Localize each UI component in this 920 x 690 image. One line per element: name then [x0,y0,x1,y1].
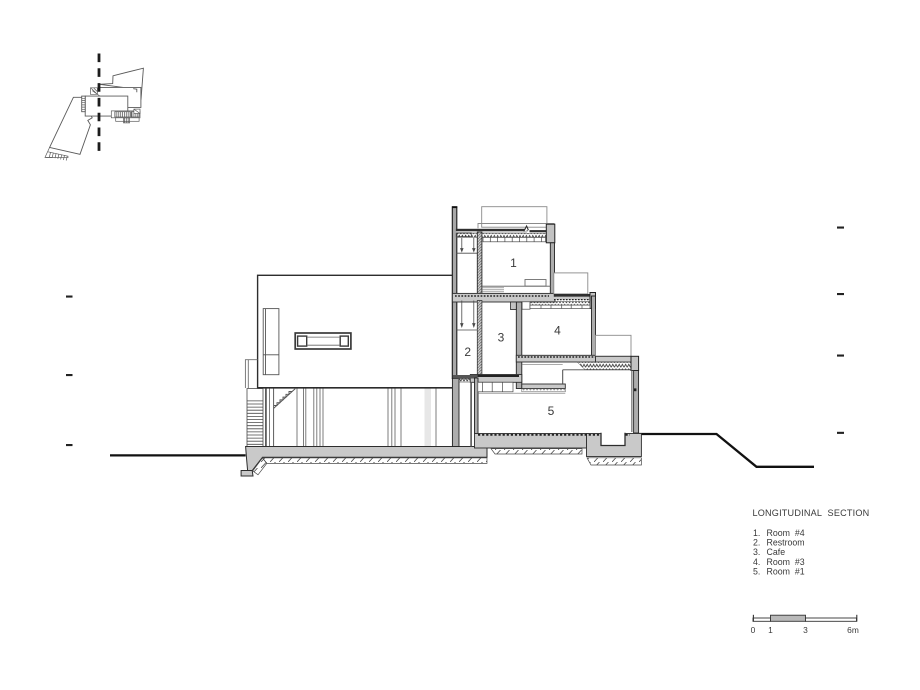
svg-text:0: 0 [751,625,756,635]
svg-text:Room #3: Room #3 [767,557,805,567]
svg-text:Room #1: Room #1 [767,566,805,576]
svg-text:3.: 3. [753,547,760,557]
svg-text:5.: 5. [753,566,760,576]
svg-text:1.: 1. [753,528,760,538]
svg-text:4.: 4. [753,557,760,567]
svg-text:Restroom: Restroom [767,538,805,548]
svg-text:LONGITUDINAL SECTION: LONGITUDINAL SECTION [753,508,870,518]
svg-text:1: 1 [768,625,773,635]
svg-text:2: 2 [464,345,471,359]
svg-text:Room #4: Room #4 [767,528,805,538]
svg-text:2.: 2. [753,538,760,548]
svg-text:6m: 6m [847,625,859,635]
svg-text:1: 1 [510,256,517,270]
svg-text:5: 5 [548,404,555,418]
svg-text:4: 4 [554,324,561,338]
svg-text:3: 3 [803,625,808,635]
svg-text:3: 3 [498,331,505,345]
svg-text:Cafe: Cafe [767,547,786,557]
